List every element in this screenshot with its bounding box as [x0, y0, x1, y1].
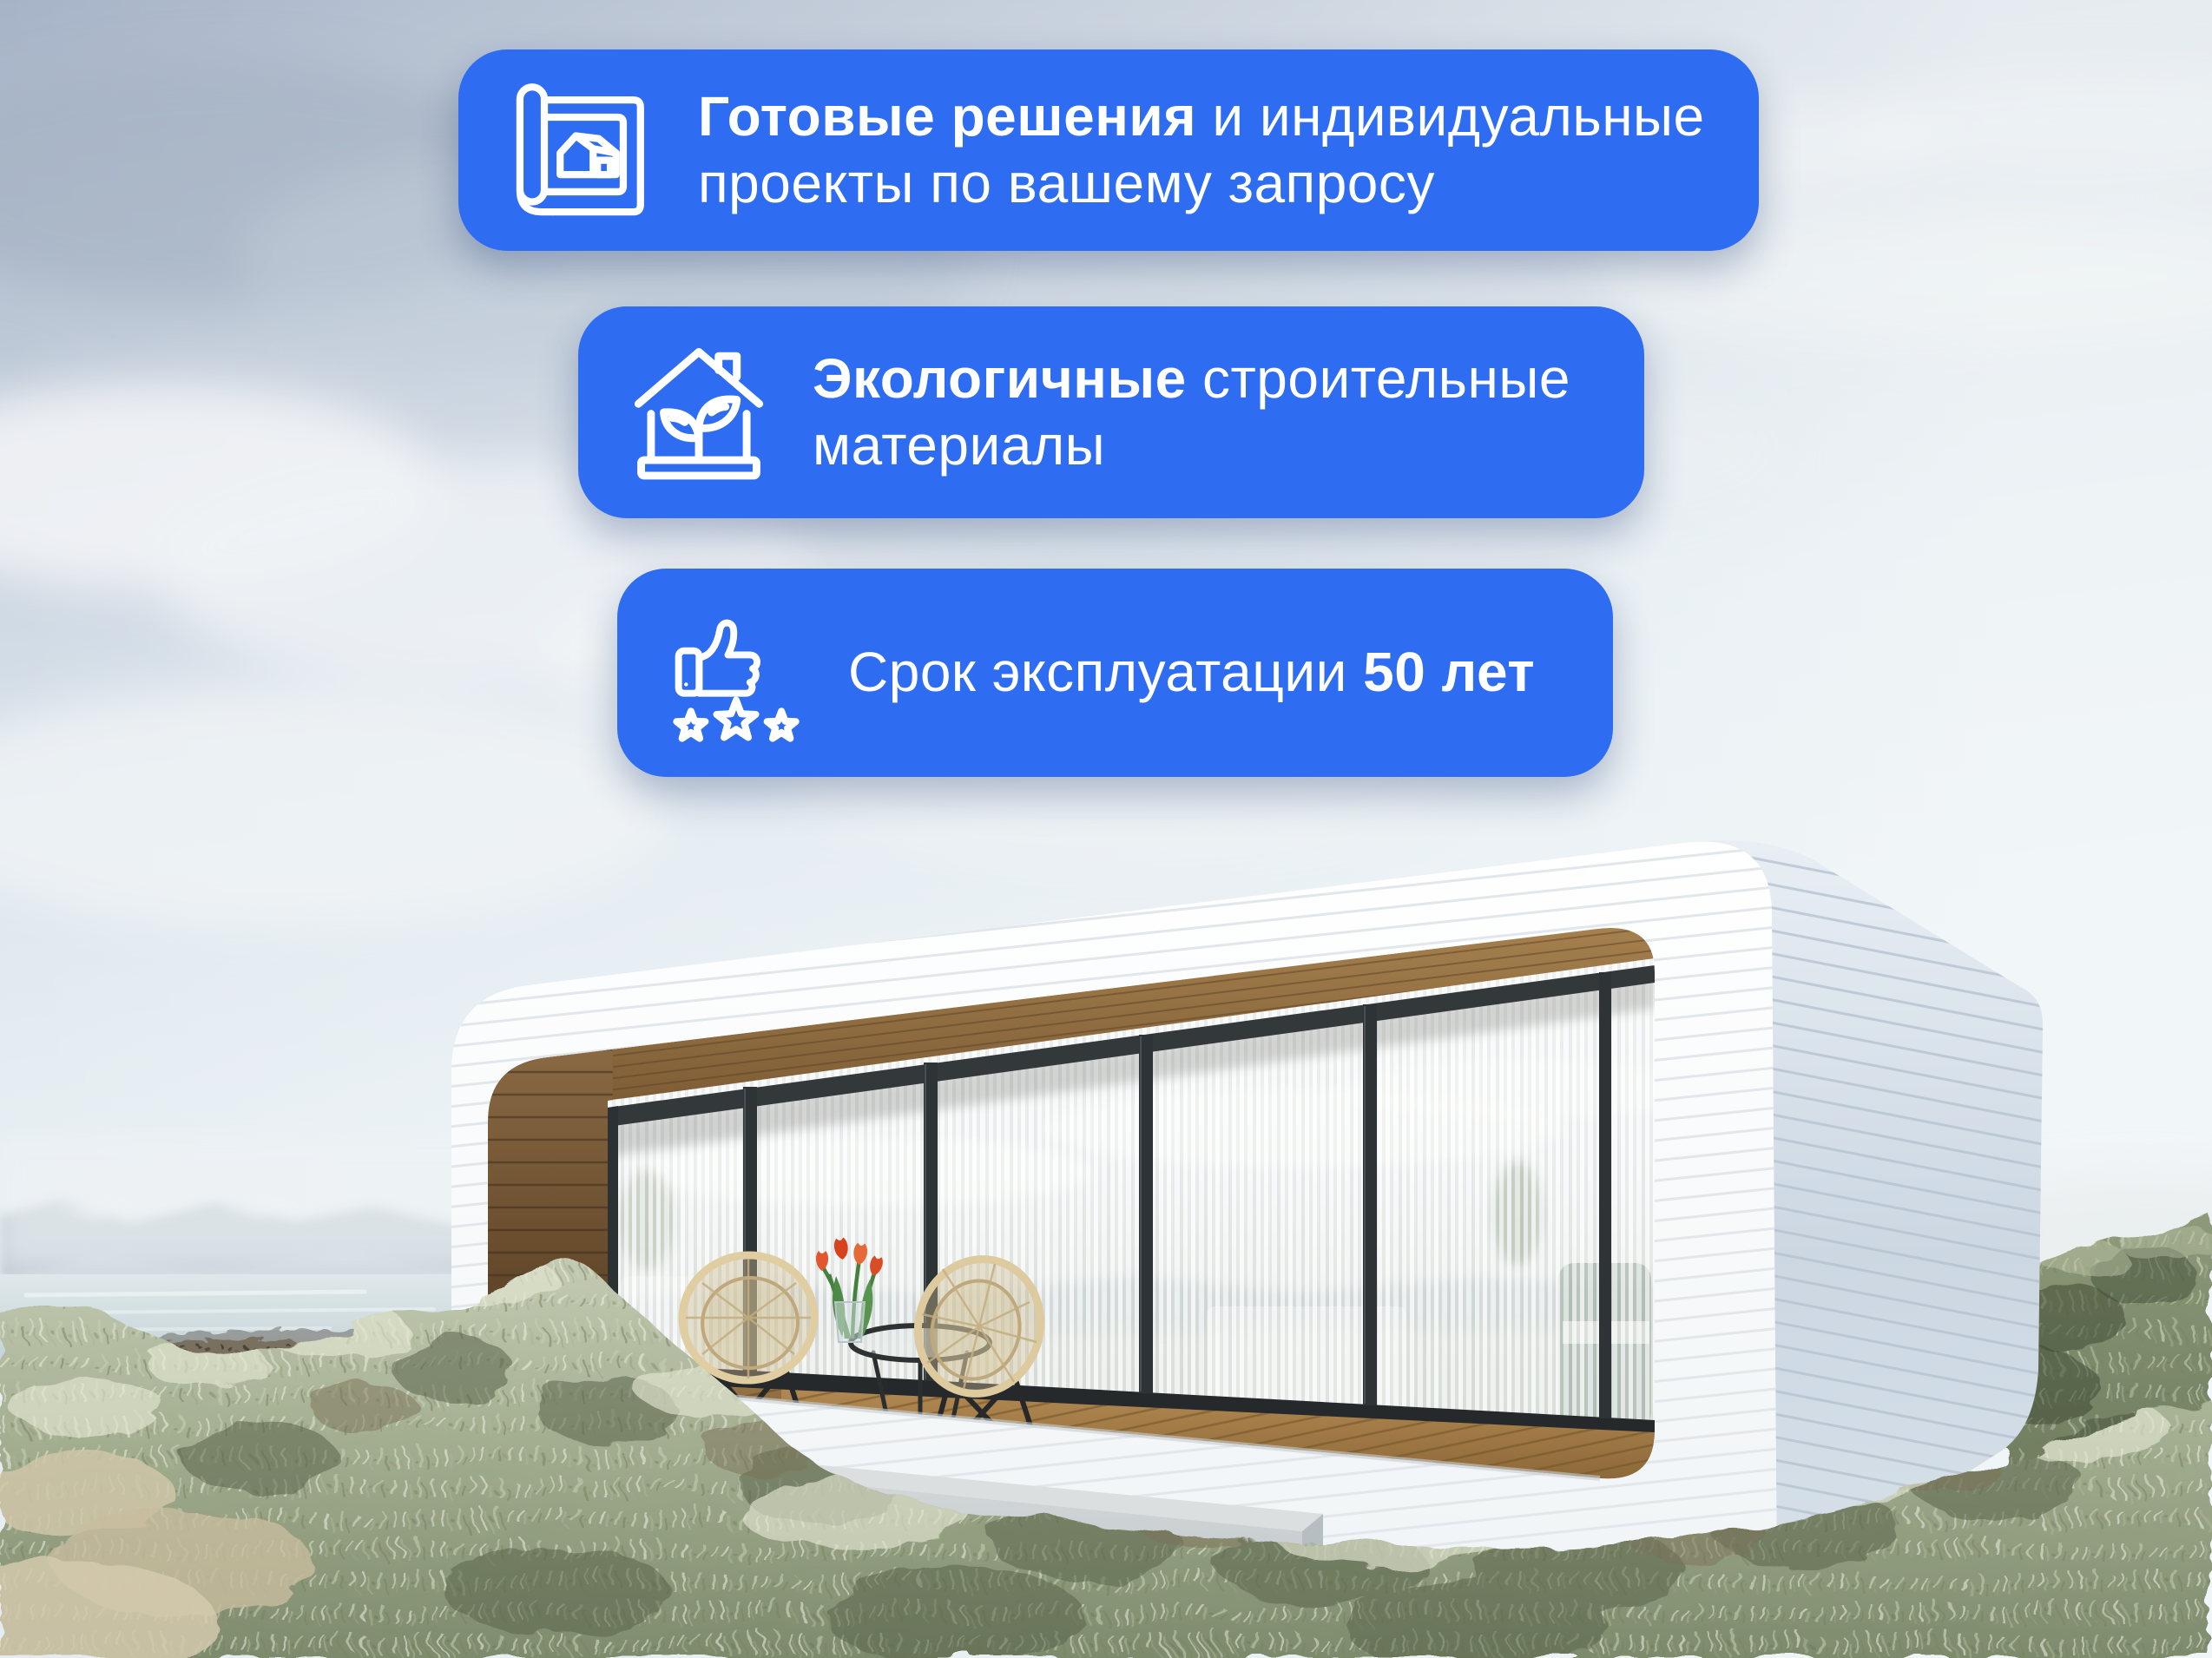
promo-banner: Готовые решения и индивидуальные проекты… [0, 0, 2212, 1658]
feature-bold-text: 50 лет [1363, 641, 1535, 703]
feature-regular-text: Срок эксплуатации [848, 641, 1363, 703]
eco-house-sprout-icon [629, 340, 769, 484]
feature-card-eco-materials: Экологичные строительные материалы [578, 306, 1644, 518]
feature-second-line: материалы [813, 414, 1105, 477]
feature-bold-text: Экологичные [813, 347, 1187, 410]
thumbs-up-stars-icon [668, 600, 805, 746]
feature-card-text: Готовые решения и индивидуальные проекты… [698, 83, 1705, 218]
feature-regular-text: строительные [1187, 347, 1570, 410]
feature-card-text: Экологичные строительные материалы [813, 345, 1570, 480]
feature-regular-text: и индивидуальные [1196, 85, 1705, 148]
glass-vase [835, 1302, 865, 1342]
blueprint-house-icon [509, 80, 655, 220]
feature-bold-text: Готовые решения [698, 85, 1196, 148]
feature-card-lifespan: Срок эксплуатации 50 лет [617, 569, 1613, 777]
feature-card-ready-solutions: Готовые решения и индивидуальные проекты… [458, 49, 1759, 251]
feature-second-line: проекты по вашему запросу [698, 152, 1435, 214]
feature-card-text: Срок эксплуатации 50 лет [848, 639, 1535, 706]
